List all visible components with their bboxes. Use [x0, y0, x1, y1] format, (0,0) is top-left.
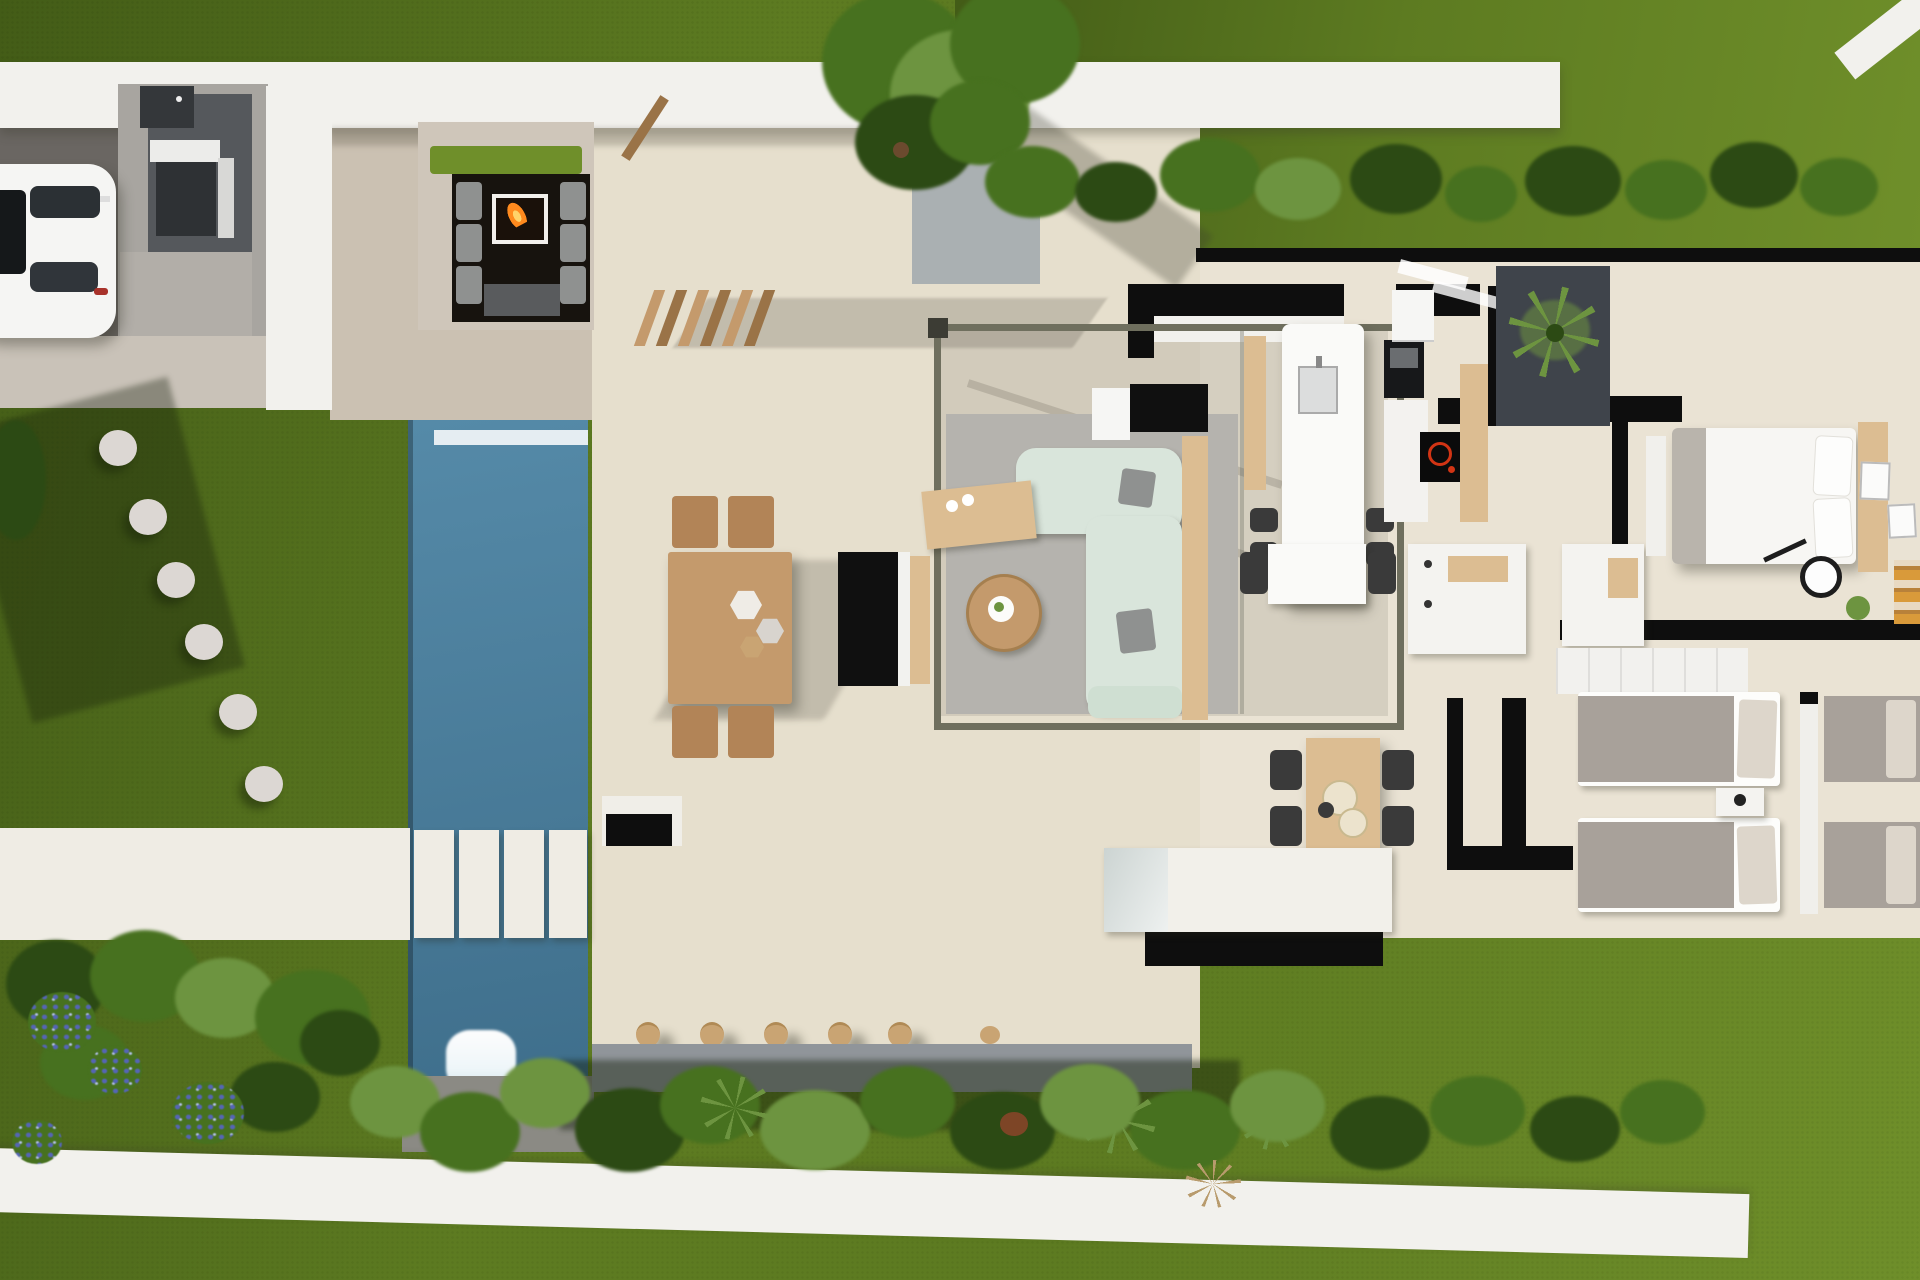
oven-door [1390, 348, 1418, 368]
pool-step [434, 430, 588, 445]
breakfast-chair [1240, 552, 1268, 594]
wardrobe-band [1556, 648, 1748, 694]
twin-bed-pillow [1886, 826, 1916, 904]
kitchen-wood-counter [1460, 364, 1488, 522]
twin-bed-pillow [1886, 700, 1916, 778]
indoor-dining-chair [1270, 806, 1302, 846]
framed-art [1859, 461, 1890, 500]
villa-aerial-render [0, 0, 1920, 1280]
outdoor-dining-chair [672, 496, 718, 548]
book-shelf [1894, 560, 1920, 624]
fire-pit-cushion [456, 182, 482, 220]
hedge-shrub [1800, 158, 1878, 216]
bbq-knob [176, 96, 182, 102]
kitchen-north-wall [1128, 284, 1344, 316]
hob-dot [1448, 466, 1455, 473]
desk-plant [1846, 596, 1870, 620]
hedge-shrub [1160, 138, 1260, 212]
breakfast-chair [1368, 552, 1396, 594]
fire-pit-grass-strip [430, 146, 582, 174]
tv-unit-edge [898, 552, 910, 686]
hydrangea-bush [88, 1046, 142, 1094]
hedge-shrub [1625, 160, 1707, 220]
sofa-back-cabinet-white [1092, 388, 1130, 440]
hydrangea-bush [28, 992, 96, 1052]
courtyard-wall-east [1598, 396, 1682, 422]
hedge-shrub [1350, 144, 1442, 214]
bedroom-wall-south [1447, 846, 1573, 870]
palm-shrub [1080, 1086, 1156, 1154]
fire-pit-cushion [560, 224, 586, 262]
stepping-stone [129, 499, 167, 535]
bed-shrub [1620, 1080, 1705, 1144]
hedge-shrub [1710, 142, 1798, 208]
pool-cross-slab [459, 830, 499, 938]
sofa-back-cabinet-black [1130, 384, 1208, 432]
bar-bottle [946, 500, 958, 512]
hedge-shrub [1525, 146, 1621, 216]
bedroom-wall-1 [1447, 698, 1463, 856]
bedroom-wall-2 [1502, 698, 1526, 856]
hedge-shrub [985, 146, 1080, 218]
tv-unit [838, 552, 902, 686]
sofa-cushion [1118, 468, 1157, 508]
bedroom-divider-cap [1800, 692, 1818, 704]
fire-pit-cushion [456, 266, 482, 304]
twin-bed-pillow [1737, 825, 1778, 904]
nightstand-lamp [1734, 794, 1746, 806]
hob-ring [1428, 442, 1452, 466]
small-pot [980, 1026, 1000, 1044]
car-windshield [30, 186, 100, 218]
kitchen-tall-units [1244, 336, 1266, 490]
indoor-dining-chair [1382, 750, 1414, 790]
hedge-shrub [1445, 166, 1517, 222]
fire-pit-cushion [560, 266, 586, 304]
table-decor-dark [1318, 802, 1334, 818]
indoor-dining-chair [1270, 750, 1302, 790]
garden-bush [300, 1010, 380, 1076]
outdoor-dining-chair [672, 706, 718, 758]
pool-cross-slab [414, 830, 454, 938]
fridge-unit [1392, 290, 1434, 342]
bed-shrub [760, 1090, 870, 1170]
bbq-side-panel [218, 158, 234, 238]
hydrangea-bush [172, 1082, 244, 1144]
sofa-cushion [1116, 608, 1157, 654]
stepping-stone [99, 430, 137, 466]
stepping-stone [219, 694, 257, 730]
bed-bench [1646, 436, 1666, 556]
floor-lamp-shade [1800, 556, 1842, 598]
sofa-frame [1182, 436, 1208, 720]
bathroom-unit-shelf [1608, 558, 1638, 598]
twin-bed-duvet [1578, 822, 1734, 908]
pergola-post [928, 318, 948, 338]
car-mirror [100, 196, 110, 202]
tree-trunk [893, 142, 909, 158]
garden-bush [230, 1062, 320, 1132]
outdoor-dining-chair [728, 496, 774, 548]
rusty-pot [1000, 1112, 1028, 1136]
fire-pit-cushion [456, 224, 482, 262]
tv-console [910, 556, 930, 684]
palm-shrub [1240, 1092, 1304, 1150]
terrace-bench-face [606, 814, 672, 846]
breakfast-table [1268, 544, 1366, 604]
vanity-faucet [1424, 560, 1432, 568]
framed-art [1887, 503, 1917, 538]
outdoor-dining-chair [728, 706, 774, 758]
outdoor-kitchen-base [120, 252, 252, 336]
dry-branch-decor [1185, 1160, 1241, 1208]
tray-plant [994, 602, 1004, 612]
porch-glass-edge [1104, 848, 1168, 932]
bed-shrub [860, 1066, 955, 1138]
pool-edge-shadow [408, 420, 413, 1080]
car-rear-window [30, 262, 98, 292]
bbq-grill [156, 162, 216, 236]
vanity-wood-shelf [1448, 556, 1508, 582]
bar-console [921, 480, 1036, 549]
table-centerpiece [1338, 808, 1368, 838]
stepping-stone [245, 766, 283, 802]
twin-bed-duvet [1578, 696, 1734, 782]
hedge-shrub [1075, 162, 1157, 222]
pool-cross-slab [549, 830, 587, 938]
palm-center [1546, 324, 1564, 342]
fire-pit-cushion [560, 182, 586, 220]
car-sunroof [0, 190, 26, 274]
vanity-faucet [1424, 600, 1432, 608]
indoor-dining-chair [1382, 806, 1414, 846]
island-sink [1298, 366, 1338, 414]
master-bed-throw [1672, 428, 1706, 564]
porch-wall [1145, 932, 1383, 966]
house-north-wall [1196, 248, 1920, 262]
bbq-lid [150, 140, 220, 162]
bbq-corner-box [140, 86, 194, 128]
bar-bottle [962, 494, 974, 506]
garden-walkway [0, 828, 410, 940]
twin-bed-pillow [1737, 699, 1778, 778]
stepping-stone [157, 562, 195, 598]
car-taillight [94, 288, 108, 295]
master-bed-pillow [1812, 497, 1853, 559]
pool-cross-slab [504, 830, 544, 938]
bed-shrub [1530, 1096, 1620, 1162]
swimming-pool [408, 420, 588, 1080]
bedroom-divider [1800, 692, 1818, 914]
palm-shrub [700, 1076, 770, 1140]
hydrangea-bush [12, 1120, 62, 1164]
bed-shrub [1330, 1096, 1430, 1170]
bed-shrub [1430, 1076, 1525, 1146]
hedge-shrub [1255, 158, 1341, 220]
bar-stool [1250, 508, 1278, 532]
garage-side-wall [266, 86, 332, 410]
fire-pit-steps [484, 284, 560, 316]
island-faucet [1316, 356, 1322, 368]
stepping-stone [185, 624, 223, 660]
master-bed-pillow [1812, 435, 1853, 497]
sofa-armrest [1088, 686, 1182, 718]
